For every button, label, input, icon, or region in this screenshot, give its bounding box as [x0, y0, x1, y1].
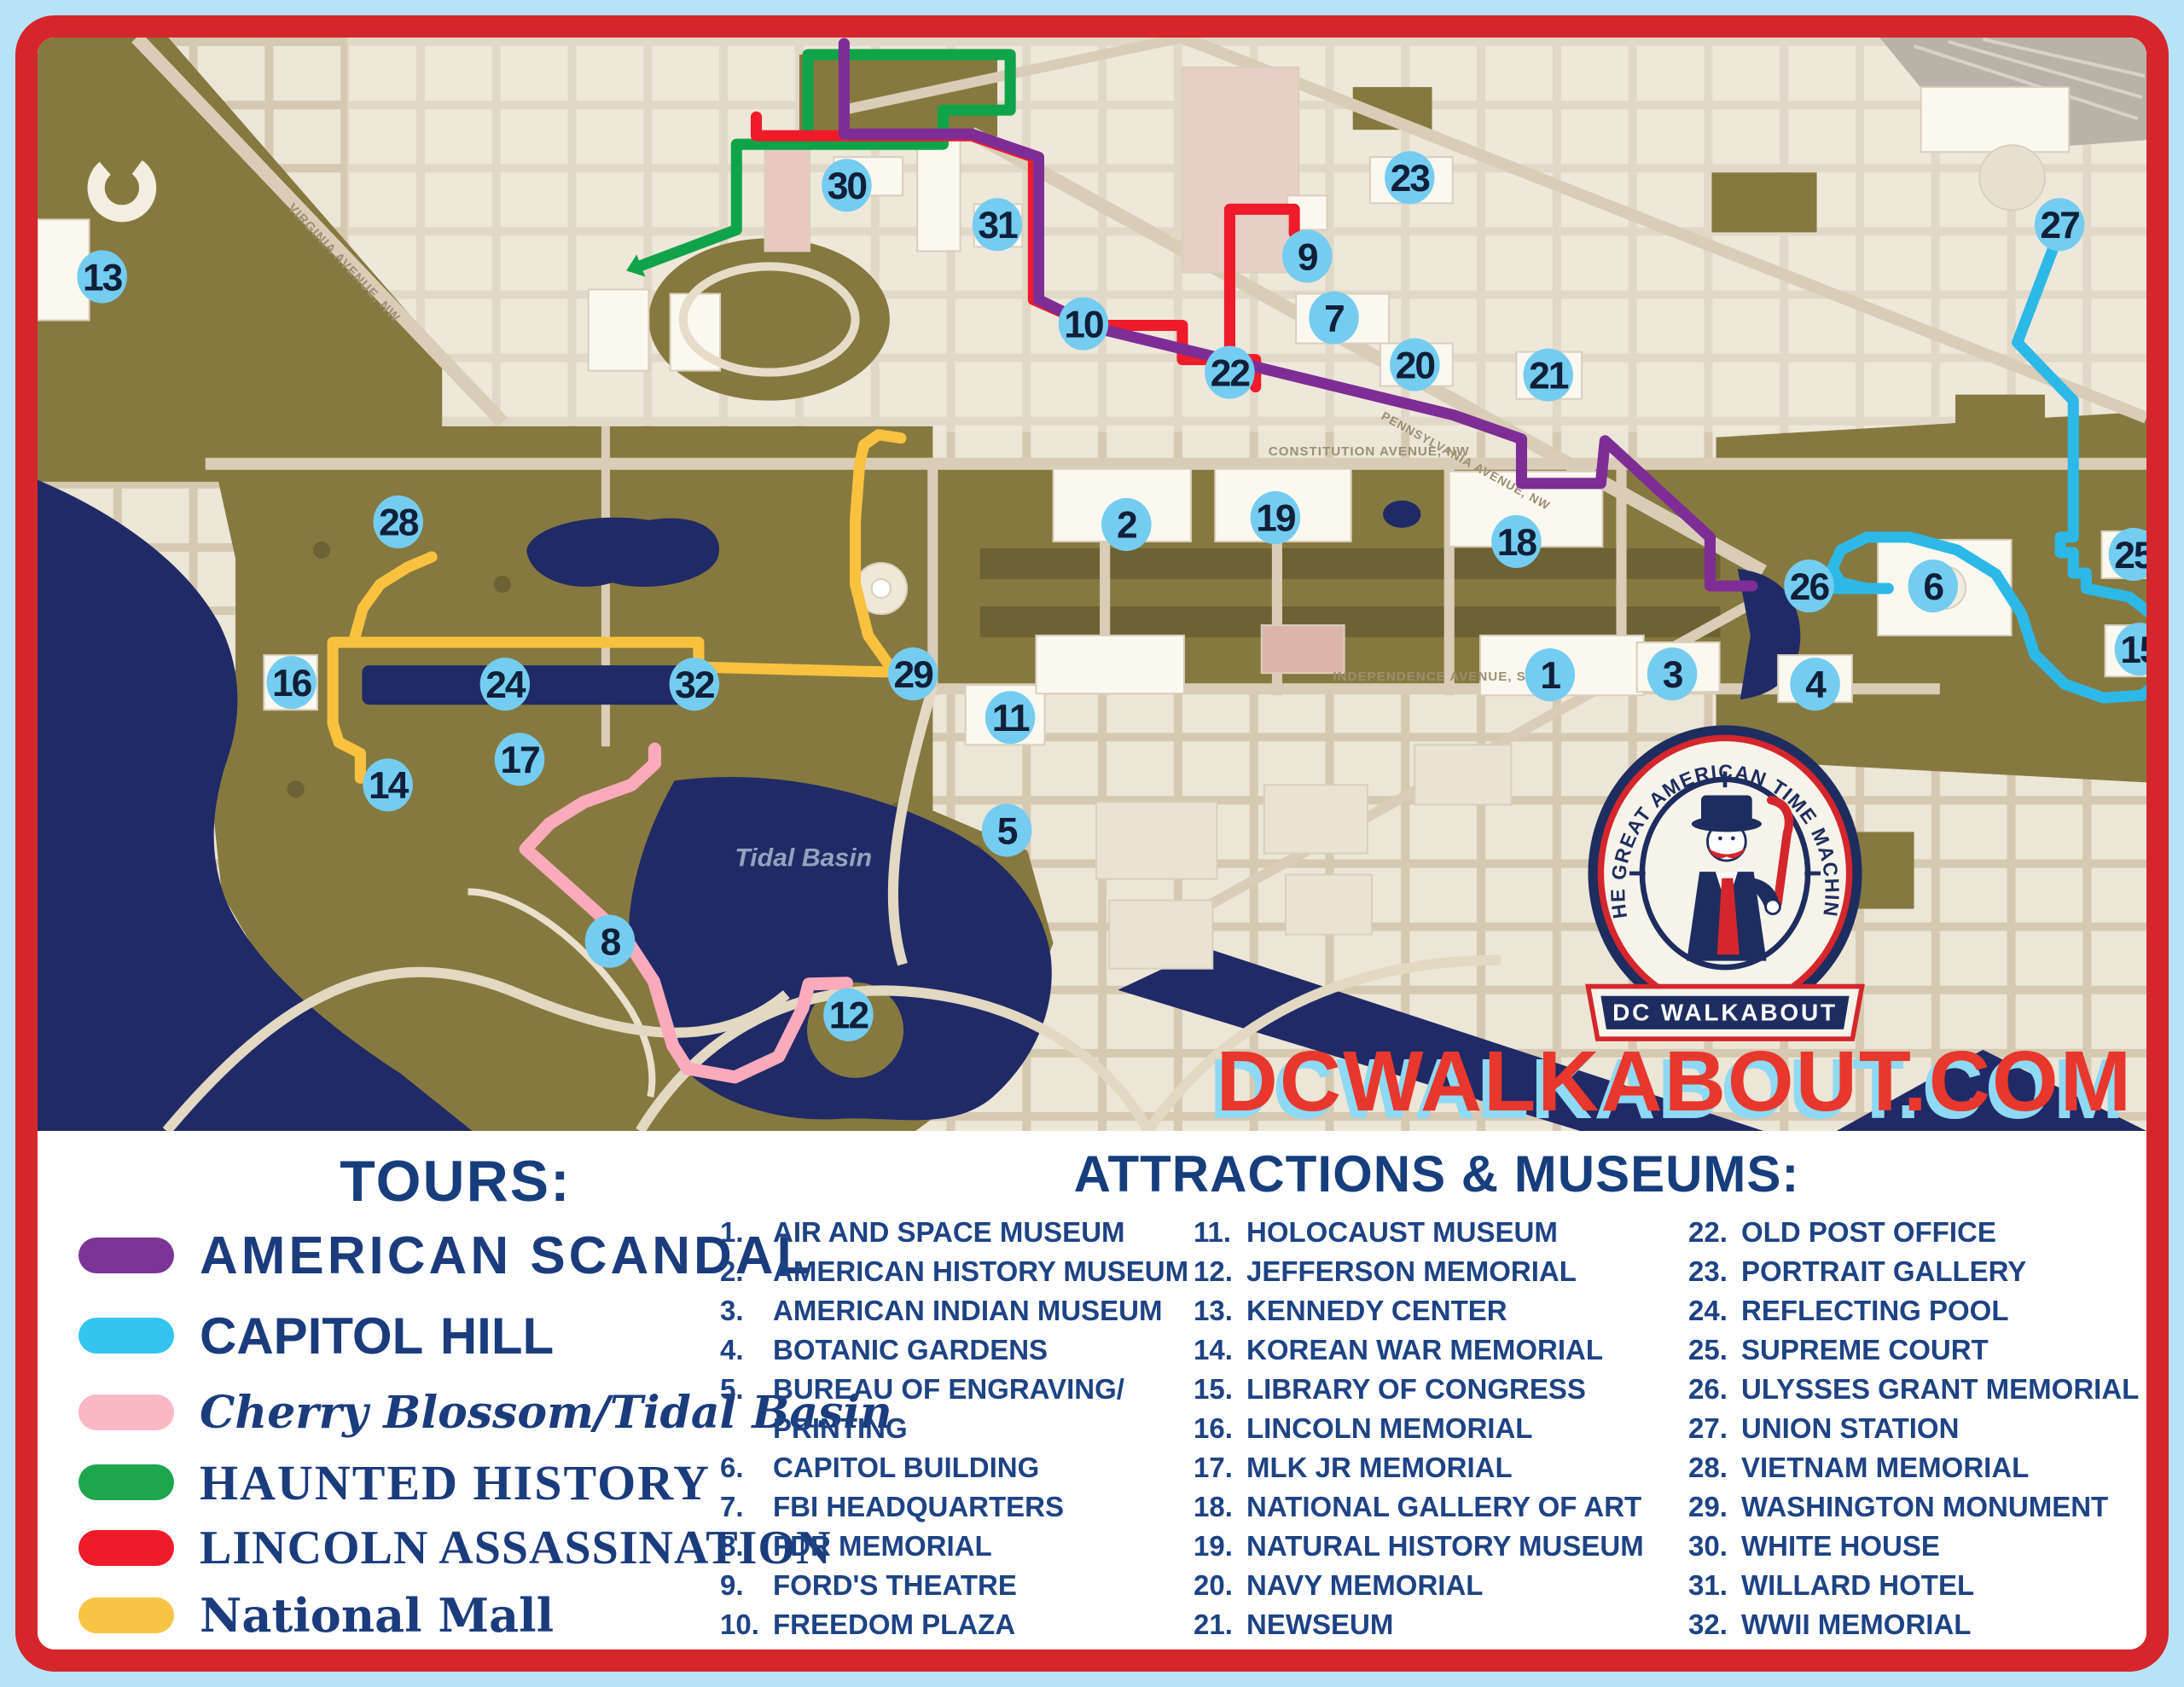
attraction-number: 28. [1688, 1448, 1741, 1487]
attraction-item: 12.JEFFERSON MEMORIAL [1194, 1252, 1644, 1291]
attraction-number: 20. [1194, 1566, 1246, 1605]
svg-text:1: 1 [1540, 655, 1560, 697]
logo-badge: THE GREAT AMERICAN TIME MACHINE [1582, 716, 1868, 1078]
map-marker-16[interactable]: 16 [266, 656, 317, 709]
svg-text:17: 17 [500, 739, 539, 781]
attractions-column: 1.AIR AND SPACE MUSEUM2.AMERICAN HISTORY… [720, 1213, 1188, 1644]
svg-text:27: 27 [2040, 205, 2079, 246]
map-marker-22[interactable]: 22 [1205, 346, 1255, 399]
attraction-item: 27.UNION STATION [1688, 1409, 2139, 1448]
svg-text:23: 23 [1391, 158, 1430, 200]
map-label: INDEPENDENCE AVENUE, SW [1333, 670, 1540, 684]
map-marker-11[interactable]: 11 [985, 691, 1036, 744]
svg-text:2: 2 [1117, 505, 1136, 547]
attraction-item: 18.NATIONAL GALLERY OF ART [1194, 1487, 1644, 1527]
map-marker-3[interactable]: 3 [1647, 647, 1698, 700]
attraction-name: WILLARD HOTEL [1741, 1566, 1974, 1605]
tour-color-pill [78, 1530, 174, 1566]
svg-text:16: 16 [272, 663, 311, 704]
attractions-title: ATTRACTIONS & MUSEUMS: [959, 1145, 1914, 1203]
attraction-item: 24.REFLECTING POOL [1688, 1291, 2139, 1330]
reflecting-pool [362, 665, 698, 704]
attraction-item: 21.NEWSEUM [1194, 1605, 1644, 1644]
legend-panel: TOURS: AMERICAN SCANDALCAPITOL HILLCherr… [38, 1131, 2146, 1649]
attraction-item: 22.OLD POST OFFICE [1688, 1213, 2139, 1252]
map-marker-14[interactable]: 14 [363, 758, 413, 811]
map-marker-2[interactable]: 2 [1101, 498, 1152, 551]
attraction-item: 25.SUPREME COURT [1688, 1330, 2139, 1370]
map-marker-29[interactable]: 29 [888, 647, 938, 700]
svg-text:9: 9 [1298, 236, 1317, 278]
attraction-item: 14.KOREAN WAR MEMORIAL [1194, 1330, 1644, 1370]
attraction-name: KOREAN WAR MEMORIAL [1246, 1330, 1603, 1370]
attraction-name: WHITE HOUSE [1741, 1527, 1940, 1566]
logo-banner: DC WALKABOUT [1588, 986, 1862, 1039]
attraction-item: 23.PORTRAIT GALLERY [1688, 1252, 2139, 1291]
svg-text:15: 15 [2120, 629, 2146, 671]
map-marker-13[interactable]: 13 [77, 250, 127, 303]
attraction-number: 14. [1194, 1330, 1246, 1370]
tour-color-pill [78, 1394, 174, 1430]
svg-text:25: 25 [2114, 535, 2146, 577]
map-marker-7[interactable]: 7 [1309, 291, 1359, 344]
attraction-item: 31.WILLARD HOTEL [1688, 1566, 2139, 1605]
svg-text:4: 4 [1805, 664, 1827, 706]
attraction-item: 32.WWII MEMORIAL [1688, 1605, 2139, 1644]
map-marker-12[interactable]: 12 [823, 988, 874, 1041]
tour-label: CAPITOL HILL [200, 1307, 554, 1365]
attractions-column: 11.HOLOCAUST MUSEUM12.JEFFERSON MEMORIAL… [1194, 1213, 1644, 1644]
svg-text:32: 32 [675, 664, 714, 706]
attraction-name: MLK JR MEMORIAL [1246, 1448, 1513, 1487]
attraction-number: 5. [720, 1370, 773, 1448]
attraction-name: LINCOLN MEMORIAL [1246, 1409, 1532, 1448]
attraction-name: NATIONAL GALLERY OF ART [1246, 1487, 1641, 1527]
attraction-number: 4. [720, 1330, 773, 1370]
map-marker-4[interactable]: 4 [1790, 658, 1840, 710]
map-marker-8[interactable]: 8 [585, 915, 636, 968]
attraction-name: WASHINGTON MONUMENT [1741, 1487, 2108, 1527]
map-marker-19[interactable]: 19 [1251, 491, 1301, 544]
map-marker-21[interactable]: 21 [1523, 349, 1573, 402]
map-marker-6[interactable]: 6 [1908, 559, 1959, 612]
attraction-number: 3. [720, 1291, 773, 1330]
map-marker-17[interactable]: 17 [495, 733, 545, 786]
map-marker-25[interactable]: 25 [2109, 528, 2146, 581]
attraction-number: 21. [1194, 1605, 1246, 1644]
attraction-item: 3.AMERICAN INDIAN MUSEUM [720, 1291, 1188, 1330]
tour-color-pill [78, 1318, 174, 1354]
attraction-number: 24. [1688, 1291, 1741, 1330]
dc-model-map: Tidal BasinCONSTITUTION AVENUE, NWINDEPE… [38, 38, 2146, 1131]
tour-color-pill [78, 1464, 174, 1500]
attraction-item: 26.ULYSSES GRANT MEMORIAL [1688, 1370, 2139, 1409]
attraction-number: 16. [1194, 1409, 1246, 1448]
svg-text:6: 6 [1923, 566, 1943, 608]
map-marker-28[interactable]: 28 [374, 496, 424, 548]
attraction-name: NATURAL HISTORY MUSEUM [1246, 1527, 1644, 1566]
attraction-number: 17. [1194, 1448, 1246, 1487]
attraction-number: 30. [1688, 1527, 1741, 1566]
map-marker-30[interactable]: 30 [822, 159, 872, 212]
svg-text:3: 3 [1663, 654, 1682, 696]
svg-text:13: 13 [83, 257, 122, 299]
attraction-name: KENNEDY CENTER [1246, 1291, 1507, 1330]
attraction-number: 13. [1194, 1291, 1246, 1330]
poster-frame: Tidal BasinCONSTITUTION AVENUE, NWINDEPE… [15, 15, 2169, 1672]
tour-color-pill [78, 1597, 174, 1633]
attraction-item: 5.BUREAU OF ENGRAVING/ PRINTING [720, 1370, 1188, 1448]
attraction-name: BUREAU OF ENGRAVING/ PRINTING [773, 1370, 1124, 1448]
svg-text:5: 5 [997, 810, 1018, 852]
attraction-name: VIETNAM MEMORIAL [1741, 1448, 2029, 1487]
attraction-name: WWII MEMORIAL [1741, 1605, 1971, 1644]
svg-text:20: 20 [1396, 345, 1435, 387]
attraction-number: 29. [1688, 1487, 1741, 1527]
attraction-item: 11.HOLOCAUST MUSEUM [1194, 1213, 1644, 1252]
attraction-item: 29.WASHINGTON MONUMENT [1688, 1487, 2139, 1527]
attraction-number: 15. [1194, 1370, 1246, 1409]
attraction-name: SUPREME COURT [1741, 1330, 1989, 1370]
attraction-name: REFLECTING POOL [1741, 1291, 2009, 1330]
attraction-name: NAVY MEMORIAL [1246, 1566, 1483, 1605]
svg-text:10: 10 [1064, 304, 1103, 346]
attraction-name: AIR AND SPACE MUSEUM [773, 1213, 1125, 1252]
attraction-number: 22. [1688, 1213, 1741, 1252]
map-marker-9[interactable]: 9 [1282, 229, 1333, 282]
attraction-name: AMERICAN INDIAN MUSEUM [773, 1291, 1163, 1330]
attraction-name: UNION STATION [1741, 1409, 1959, 1448]
svg-text:21: 21 [1529, 356, 1569, 397]
map-marker-1[interactable]: 1 [1525, 648, 1576, 701]
map-marker-26[interactable]: 26 [1784, 559, 1834, 612]
attraction-number: 31. [1688, 1566, 1741, 1605]
svg-text:7: 7 [1324, 299, 1344, 340]
attraction-name: FDR MEMORIAL [773, 1527, 992, 1566]
attraction-item: 17.MLK JR MEMORIAL [1194, 1448, 1644, 1487]
map-marker-15[interactable]: 15 [2115, 623, 2146, 675]
map-marker-5[interactable]: 5 [982, 803, 1032, 856]
map-marker-18[interactable]: 18 [1491, 515, 1542, 568]
attraction-item: 16.LINCOLN MEMORIAL [1194, 1409, 1644, 1448]
attraction-name: OLD POST OFFICE [1741, 1213, 1996, 1252]
attraction-number: 19. [1194, 1527, 1246, 1566]
attraction-item: 7.FBI HEADQUARTERS [720, 1487, 1188, 1527]
map-marker-27[interactable]: 27 [2035, 198, 2085, 251]
attraction-number: 1. [720, 1213, 773, 1252]
map-marker-23[interactable]: 23 [1385, 151, 1435, 204]
svg-text:8: 8 [601, 922, 621, 964]
attraction-number: 27. [1688, 1409, 1741, 1448]
attraction-name: CAPITOL BUILDING [773, 1448, 1039, 1487]
attraction-name: FREEDOM PLAZA [773, 1605, 1015, 1644]
tour-label: HAUNTED HISTORY [200, 1454, 711, 1511]
svg-text:11: 11 [992, 698, 1030, 739]
tour-color-pill [78, 1238, 174, 1273]
attraction-item: 6.CAPITOL BUILDING [720, 1448, 1188, 1487]
attraction-item: 9.FORD'S THEATRE [720, 1566, 1188, 1605]
attractions-column: 22.OLD POST OFFICE23.PORTRAIT GALLERY24.… [1688, 1213, 2139, 1644]
logo-banner-text: DC WALKABOUT [1612, 999, 1838, 1025]
attraction-item: 2.AMERICAN HISTORY MUSEUM [720, 1252, 1188, 1291]
svg-text:12: 12 [829, 995, 868, 1037]
map-marker-31[interactable]: 31 [973, 198, 1023, 251]
attraction-number: 32. [1688, 1605, 1741, 1644]
map-marker-24[interactable]: 24 [480, 658, 531, 710]
svg-text:26: 26 [1790, 566, 1829, 608]
svg-text:18: 18 [1497, 522, 1537, 564]
map-marker-10[interactable]: 10 [1059, 297, 1109, 350]
union-station-building [1921, 87, 2070, 152]
svg-text:28: 28 [379, 502, 419, 544]
attraction-number: 11. [1194, 1213, 1246, 1252]
svg-text:14: 14 [369, 765, 409, 807]
attraction-item: 1.AIR AND SPACE MUSEUM [720, 1213, 1188, 1252]
attraction-name: ULYSSES GRANT MEMORIAL [1741, 1370, 2139, 1409]
map-marker-32[interactable]: 32 [670, 658, 720, 710]
attraction-item: 20.NAVY MEMORIAL [1194, 1566, 1644, 1605]
svg-text:19: 19 [1256, 498, 1295, 540]
attraction-item: 4.BOTANIC GARDENS [720, 1330, 1188, 1370]
constitution-gardens-pond [526, 518, 719, 587]
svg-text:30: 30 [828, 165, 867, 207]
attraction-name: BOTANIC GARDENS [773, 1330, 1048, 1370]
map-label: Tidal Basin [735, 844, 872, 872]
attraction-name: AMERICAN HISTORY MUSEUM [773, 1252, 1188, 1291]
attraction-number: 7. [720, 1487, 773, 1527]
attraction-name: LIBRARY OF CONGRESS [1246, 1370, 1586, 1409]
attraction-item: 15.LIBRARY OF CONGRESS [1194, 1370, 1644, 1409]
attraction-item: 19.NATURAL HISTORY MUSEUM [1194, 1527, 1644, 1566]
tour-label: National Mall [200, 1588, 554, 1643]
attraction-number: 8. [720, 1527, 773, 1566]
map-marker-20[interactable]: 20 [1390, 339, 1440, 391]
svg-text:24: 24 [485, 664, 526, 706]
attraction-number: 6. [720, 1448, 773, 1487]
attraction-name: PORTRAIT GALLERY [1741, 1252, 2026, 1291]
attraction-name: FORD'S THEATRE [773, 1566, 1017, 1605]
attraction-name: NEWSEUM [1246, 1605, 1393, 1644]
attraction-number: 9. [720, 1566, 773, 1605]
attraction-number: 12. [1194, 1252, 1246, 1291]
attraction-number: 18. [1194, 1487, 1246, 1527]
attraction-number: 26. [1688, 1370, 1741, 1409]
svg-text:22: 22 [1211, 353, 1250, 395]
attraction-name: JEFFERSON MEMORIAL [1246, 1252, 1577, 1291]
attraction-name: FBI HEADQUARTERS [773, 1487, 1064, 1527]
attraction-number: 2. [720, 1252, 773, 1291]
attraction-name: HOLOCAUST MUSEUM [1246, 1213, 1558, 1252]
attraction-number: 25. [1688, 1330, 1741, 1370]
attraction-item: 28.VIETNAM MEMORIAL [1688, 1448, 2139, 1487]
attraction-item: 13.KENNEDY CENTER [1194, 1291, 1644, 1330]
attraction-item: 30.WHITE HOUSE [1688, 1527, 2139, 1566]
svg-text:29: 29 [893, 654, 932, 696]
dc-walkabout-logo: THE GREAT AMERICAN TIME MACHINE [1582, 716, 1868, 1078]
attraction-number: 10. [720, 1605, 773, 1644]
attraction-item: 8.FDR MEMORIAL [720, 1527, 1188, 1566]
tours-title: TOURS: [55, 1148, 857, 1215]
attraction-item: 10.FREEDOM PLAZA [720, 1605, 1188, 1644]
svg-text:31: 31 [978, 205, 1018, 246]
attraction-number: 23. [1688, 1252, 1741, 1291]
website-url: DCWALKABOUT.COM [1217, 1033, 2133, 1131]
dc-walkabout-map-poster: { "site_url": "DCWALKABOUT.COM", "logo":… [0, 0, 2184, 1687]
